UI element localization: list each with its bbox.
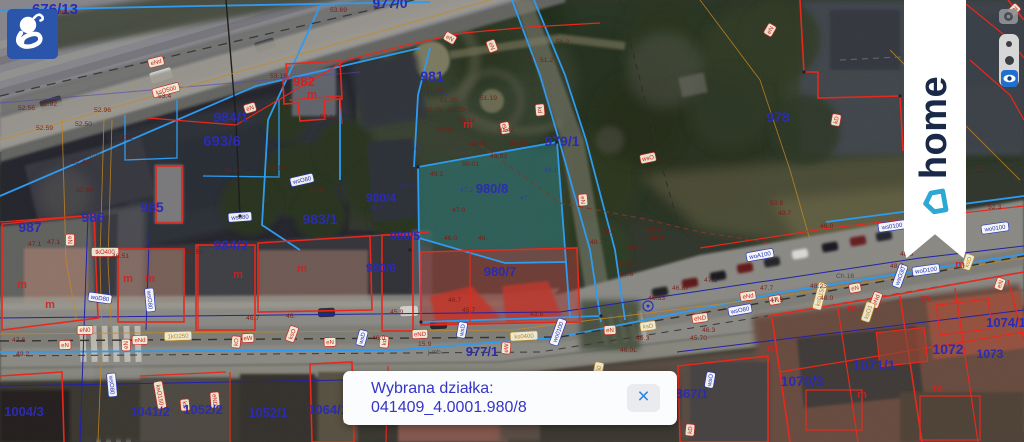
svg-text:46.0: 46.0 <box>444 235 457 242</box>
svg-text:1052/1: 1052/1 <box>248 405 288 420</box>
svg-text:48.2: 48.2 <box>628 245 641 252</box>
svg-text:1052/2: 1052/2 <box>183 402 223 417</box>
svg-text:49.2: 49.2 <box>430 171 443 178</box>
svg-text:50.8: 50.8 <box>770 200 783 207</box>
svg-text:46.51: 46.51 <box>186 249 203 256</box>
svg-text:1070/3: 1070/3 <box>781 373 824 389</box>
svg-text:48.7: 48.7 <box>602 228 615 235</box>
svg-text:986: 986 <box>81 209 105 225</box>
svg-text:46.33: 46.33 <box>648 295 665 302</box>
svg-text:53.4: 53.4 <box>158 93 171 100</box>
svg-text:51.25: 51.25 <box>430 91 447 98</box>
svg-text:47.0: 47.0 <box>452 207 465 214</box>
svg-text:eND: eND <box>414 332 427 338</box>
svg-text:52.3: 52.3 <box>988 204 1001 211</box>
svg-text:52.92: 52.92 <box>40 101 57 108</box>
svg-text:m: m <box>45 299 55 311</box>
svg-text:51.4: 51.4 <box>520 55 533 62</box>
svg-text:984/1: 984/1 <box>213 109 248 125</box>
svg-text:50.01: 50.01 <box>462 161 479 168</box>
svg-text:51.2: 51.2 <box>540 57 553 64</box>
svg-text:47.1: 47.1 <box>47 239 60 246</box>
svg-text:52.96: 52.96 <box>94 107 111 114</box>
svg-text:ks0400: ks0400 <box>514 334 534 341</box>
svg-text:m: m <box>145 273 155 285</box>
svg-text:1074/1: 1074/1 <box>986 315 1024 330</box>
svg-text:m: m <box>920 293 930 305</box>
svg-text:48.23: 48.23 <box>810 283 827 290</box>
svg-text:50.02: 50.02 <box>436 127 453 134</box>
svg-text:47.5: 47.5 <box>770 297 783 304</box>
svg-text:43.6: 43.6 <box>530 311 543 318</box>
svg-text:979/1: 979/1 <box>544 133 579 149</box>
svg-text:m: m <box>767 343 777 355</box>
svg-text:982: 982 <box>293 74 315 89</box>
svg-text:987: 987 <box>18 219 42 235</box>
svg-text:eN: eN <box>579 196 586 204</box>
svg-text:eW: eW <box>243 336 253 342</box>
svg-text:47.2: 47.2 <box>460 187 473 194</box>
svg-text:977/0: 977/0 <box>372 0 407 11</box>
svg-text:46.: 46. <box>478 235 488 242</box>
svg-text:46.0: 46.0 <box>372 335 385 342</box>
svg-text:50.42: 50.42 <box>497 127 514 134</box>
svg-text:eN: eN <box>606 328 614 334</box>
svg-text:51.2: 51.2 <box>556 39 569 46</box>
svg-text:45.50: 45.50 <box>225 167 242 174</box>
svg-text:983/1: 983/1 <box>302 211 337 227</box>
svg-text:47.1: 47.1 <box>704 277 717 284</box>
svg-text:53.16: 53.16 <box>270 73 287 80</box>
svg-text:52.9: 52.9 <box>310 187 323 194</box>
svg-text:49.93: 49.93 <box>490 153 507 160</box>
svg-text:eN: eN <box>326 340 334 346</box>
svg-text:867/1: 867/1 <box>676 386 709 401</box>
svg-text:45.2: 45.2 <box>370 205 383 212</box>
svg-text:Ch.16: Ch.16 <box>836 273 854 280</box>
svg-text:47.6: 47.6 <box>620 271 633 278</box>
svg-text:46.3: 46.3 <box>702 327 715 334</box>
svg-text:53.14: 53.14 <box>320 114 337 121</box>
svg-text:981: 981 <box>420 68 444 84</box>
svg-text:48.7: 48.7 <box>590 239 603 246</box>
svg-text:49.95: 49.95 <box>470 141 487 148</box>
svg-text:1071/1: 1071/1 <box>853 357 896 373</box>
svg-text:980/8: 980/8 <box>476 181 509 196</box>
svg-text:45.70: 45.70 <box>690 335 707 342</box>
svg-text:m: m <box>17 279 27 291</box>
svg-text:48.0: 48.0 <box>820 295 833 302</box>
svg-text:46.: 46. <box>286 313 296 320</box>
svg-text:1kO250: 1kO250 <box>167 334 189 341</box>
svg-text:980/7: 980/7 <box>484 264 517 279</box>
svg-text:45.6: 45.6 <box>618 261 631 268</box>
svg-text:51.29: 51.29 <box>448 107 465 114</box>
svg-text:kD: kD <box>688 426 695 434</box>
svg-text:980/5: 980/5 <box>390 229 420 243</box>
svg-text:eN: eN <box>124 341 130 349</box>
svg-text:50.12: 50.12 <box>458 117 475 124</box>
svg-text:978: 978 <box>766 109 790 125</box>
svg-text:m: m <box>933 383 943 395</box>
svg-text:1072: 1072 <box>932 341 963 357</box>
svg-text:52.5: 52.5 <box>975 165 988 172</box>
svg-text:j.mb.: j.mb. <box>427 349 443 356</box>
svg-text:693/6: 693/6 <box>203 133 241 150</box>
svg-text:45.7: 45.7 <box>462 307 475 314</box>
svg-text:980/4: 980/4 <box>366 191 396 205</box>
svg-text:52.40: 52.40 <box>72 159 89 166</box>
svg-text:46.7: 46.7 <box>246 315 259 322</box>
svg-text:46.3: 46.3 <box>636 335 649 342</box>
svg-text:50.00: 50.00 <box>510 140 527 147</box>
svg-text:m: m <box>857 389 867 401</box>
svg-text:48.7: 48.7 <box>890 263 903 270</box>
svg-text:15.9: 15.9 <box>418 341 431 348</box>
svg-text:52.56: 52.56 <box>18 105 35 112</box>
svg-text:977/1: 977/1 <box>466 344 499 359</box>
svg-text:985: 985 <box>140 199 164 215</box>
svg-text:49.7: 49.7 <box>778 210 791 217</box>
svg-text:m: m <box>297 263 307 275</box>
svg-text:51.79: 51.79 <box>425 107 442 114</box>
svg-text:46.51: 46.51 <box>112 253 129 260</box>
svg-text:46.87: 46.87 <box>672 285 689 292</box>
svg-text:1073: 1073 <box>977 347 1004 361</box>
svg-text:52.50: 52.50 <box>75 121 92 128</box>
svg-text:47.6: 47.6 <box>12 337 25 344</box>
svg-text:46.7: 46.7 <box>448 297 461 304</box>
svg-text:49.2: 49.2 <box>16 351 29 358</box>
svg-text:51.1: 51.1 <box>398 115 411 122</box>
svg-text:984/2: 984/2 <box>213 237 248 253</box>
svg-text:49.1: 49.1 <box>544 167 557 174</box>
svg-text:53.69: 53.69 <box>330 7 347 14</box>
svg-text:50.1: 50.1 <box>412 145 425 152</box>
svg-text:kd: kd <box>536 107 543 114</box>
svg-text:1004/3: 1004/3 <box>4 404 44 419</box>
svg-text:47.1: 47.1 <box>28 241 41 248</box>
svg-text:eN: eN <box>61 343 69 349</box>
svg-text:kO: kO <box>234 338 241 346</box>
svg-text:eN0: eN0 <box>79 328 91 334</box>
svg-text:m: m <box>123 273 133 285</box>
svg-text:53.10: 53.10 <box>268 165 285 172</box>
svg-text:52.59: 52.59 <box>36 125 53 132</box>
svg-text:52.89: 52.89 <box>76 187 93 194</box>
svg-text:eNd: eNd <box>134 338 145 344</box>
svg-text:46.0L: 46.0L <box>620 347 637 354</box>
svg-text:S4,ch.kb: S4,ch.kb <box>448 150 475 157</box>
svg-text:53.2: 53.2 <box>120 135 133 142</box>
svg-text:48.8: 48.8 <box>650 235 663 242</box>
svg-text:47.7: 47.7 <box>760 285 773 292</box>
svg-text:m: m <box>847 303 857 315</box>
svg-text:1064/1: 1064/1 <box>308 402 348 417</box>
svg-text:49.8: 49.8 <box>648 227 661 234</box>
svg-text:47.: 47. <box>520 195 530 202</box>
svg-text:m: m <box>233 269 243 281</box>
svg-text:51.19: 51.19 <box>480 95 497 102</box>
svg-text:m: m <box>955 259 965 271</box>
svg-text:eN: eN <box>66 236 72 244</box>
svg-text:46.0: 46.0 <box>820 223 833 230</box>
svg-text:980/6: 980/6 <box>366 261 396 275</box>
svg-text:eW: eW <box>504 343 511 353</box>
svg-text:m: m <box>307 89 317 101</box>
svg-text:51.26: 51.26 <box>440 97 457 104</box>
svg-text:45.9: 45.9 <box>390 309 403 316</box>
svg-text:47.3: 47.3 <box>400 183 413 190</box>
svg-text:j.mb.: j.mb. <box>89 152 105 159</box>
svg-text:1041/2: 1041/2 <box>130 404 170 419</box>
